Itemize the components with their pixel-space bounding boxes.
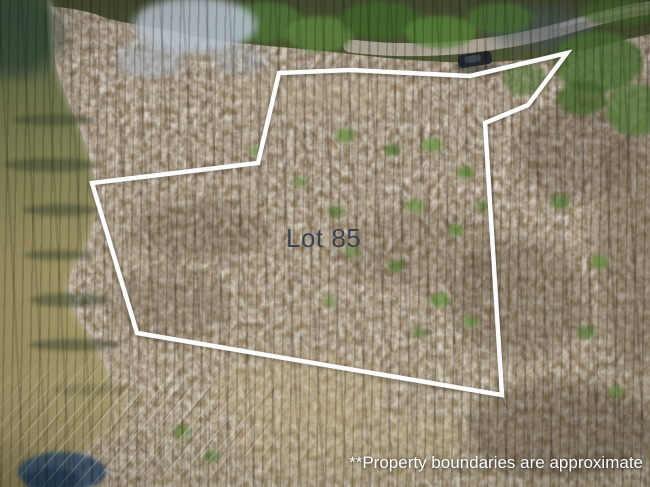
boundary-disclaimer-text: **Property boundaries are approximate	[349, 454, 643, 473]
aerial-photo: Lot 85 **Property boundaries are approxi…	[0, 0, 650, 487]
lot-number-label: Lot 85	[286, 225, 361, 251]
